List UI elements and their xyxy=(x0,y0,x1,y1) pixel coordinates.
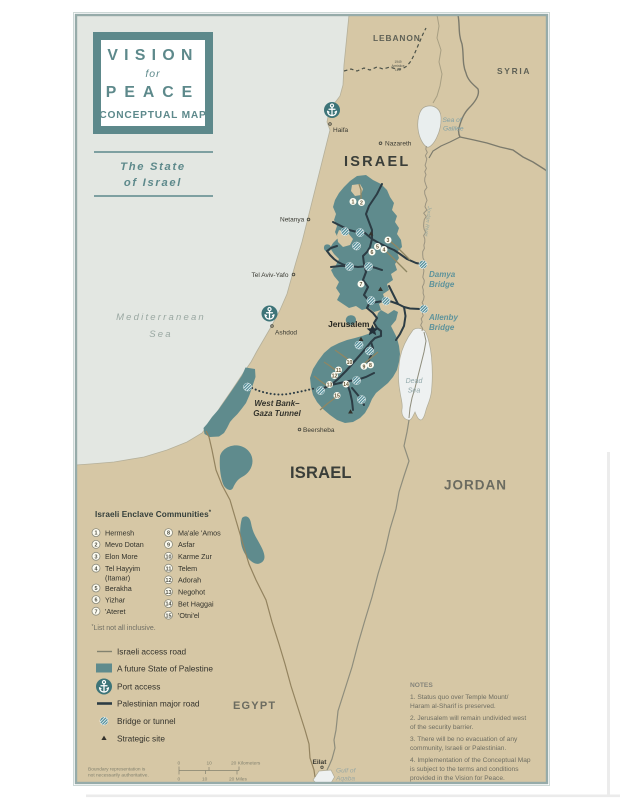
svg-text:4. Implementation of the Conce: 4. Implementation of the Conceptual Map xyxy=(410,757,531,764)
svg-text:0: 0 xyxy=(178,777,181,783)
svg-text:Yizhar: Yizhar xyxy=(105,595,126,604)
svg-text:6: 6 xyxy=(371,250,374,256)
svg-text:Aqaba: Aqaba xyxy=(335,776,355,783)
svg-text:Mevo Dotan: Mevo Dotan xyxy=(105,540,144,549)
svg-text:10: 10 xyxy=(207,761,213,767)
svg-text:9: 9 xyxy=(363,364,366,370)
svg-text:4: 4 xyxy=(383,248,386,254)
svg-text:13: 13 xyxy=(166,590,172,596)
svg-text:Mediterranean: Mediterranean xyxy=(116,312,206,323)
svg-text:2: 2 xyxy=(360,201,363,207)
svg-text:Eilat: Eilat xyxy=(313,759,328,766)
svg-text:A future State of Palestine: A future State of Palestine xyxy=(117,664,213,674)
svg-text:Port access: Port access xyxy=(117,682,160,692)
svg-text:'Otni'el: 'Otni'el xyxy=(178,611,200,620)
svg-text:7: 7 xyxy=(95,609,98,615)
svg-text:3: 3 xyxy=(387,238,390,244)
svg-text:Sea of: Sea of xyxy=(443,117,463,124)
svg-text:Bridge: Bridge xyxy=(429,323,455,332)
svg-text:Hermesh: Hermesh xyxy=(105,528,134,537)
svg-text:Palestinian major road: Palestinian major road xyxy=(117,699,200,709)
svg-text:of Israel: of Israel xyxy=(124,177,182,189)
svg-text:Berakha: Berakha xyxy=(105,584,132,593)
svg-text:Bridge or tunnel: Bridge or tunnel xyxy=(117,716,176,726)
svg-text:Beersheba: Beersheba xyxy=(303,427,335,434)
svg-text:Israeli Enclave Communities*: Israeli Enclave Communities* xyxy=(95,510,212,519)
svg-text:of the security barrier.: of the security barrier. xyxy=(410,724,474,731)
svg-text:Boundary representation is: Boundary representation is xyxy=(88,767,146,773)
svg-text:20 Kilometers: 20 Kilometers xyxy=(231,761,261,767)
svg-text:Galilee: Galilee xyxy=(443,126,464,133)
svg-text:15: 15 xyxy=(334,394,340,400)
svg-text:Ashdod: Ashdod xyxy=(275,330,297,337)
svg-text:1. Status quo over Temple Moun: 1. Status quo over Temple Mount/ xyxy=(410,694,509,701)
svg-text:Gaza Tunnel: Gaza Tunnel xyxy=(253,409,301,418)
svg-text:Sea: Sea xyxy=(149,329,173,340)
svg-text:Bridge: Bridge xyxy=(429,280,455,289)
svg-text:1: 1 xyxy=(352,200,355,206)
svg-text:Negohot: Negohot xyxy=(178,588,205,597)
svg-text:Haifa: Haifa xyxy=(333,127,349,134)
svg-text:14: 14 xyxy=(166,602,172,608)
svg-text:12: 12 xyxy=(166,578,172,584)
svg-text:Tel Aviv-Yafo: Tel Aviv-Yafo xyxy=(252,272,289,279)
svg-text:4: 4 xyxy=(95,566,98,572)
svg-text:Gulf of: Gulf of xyxy=(336,768,357,775)
svg-text:Netanya: Netanya xyxy=(280,217,305,224)
svg-text:Nazareth: Nazareth xyxy=(385,141,412,148)
svg-text:1: 1 xyxy=(95,531,98,537)
svg-text:Allenby: Allenby xyxy=(428,313,458,322)
svg-text:5: 5 xyxy=(95,586,98,592)
svg-text:West Bank–: West Bank– xyxy=(254,399,300,408)
svg-text:Bet Haggai: Bet Haggai xyxy=(178,599,214,608)
svg-text:SYRIA: SYRIA xyxy=(497,66,531,76)
svg-text:10: 10 xyxy=(202,777,208,783)
svg-text:(Itamar): (Itamar) xyxy=(105,574,130,583)
svg-text:Tel Hayyim: Tel Hayyim xyxy=(105,564,140,573)
svg-text:20 Miles: 20 Miles xyxy=(229,777,247,783)
svg-text:13: 13 xyxy=(327,383,333,389)
svg-text:*List not all inclusive.: *List not all inclusive. xyxy=(92,624,156,632)
svg-text:CONCEPTUAL MAP: CONCEPTUAL MAP xyxy=(99,110,206,121)
svg-text:10: 10 xyxy=(166,554,172,560)
svg-text:Strategic site: Strategic site xyxy=(117,734,165,744)
svg-text:community, Israeli or Palestin: community, Israeli or Palestinian. xyxy=(410,745,506,752)
svg-text:VISION: VISION xyxy=(107,47,198,64)
svg-text:6: 6 xyxy=(95,598,98,604)
svg-text:8: 8 xyxy=(167,531,170,537)
svg-text:is subject to the terms and co: is subject to the terms and conditions xyxy=(410,766,519,773)
svg-text:ISRAEL: ISRAEL xyxy=(290,464,352,482)
svg-text:Haram al-Sharif is preserved.: Haram al-Sharif is preserved. xyxy=(410,703,496,710)
svg-text:Israeli access road: Israeli access road xyxy=(117,647,187,657)
svg-text:5: 5 xyxy=(376,245,379,251)
svg-text:JORDAN: JORDAN xyxy=(444,478,507,493)
svg-text:NOTES: NOTES xyxy=(410,682,433,689)
svg-text:The State: The State xyxy=(120,161,186,173)
svg-text:not necessarily authoritative.: not necessarily authoritative. xyxy=(88,773,149,779)
svg-text:Sea: Sea xyxy=(408,388,421,395)
svg-text:Karme Zur: Karme Zur xyxy=(178,552,213,561)
svg-text:Line: Line xyxy=(395,68,401,72)
svg-text:14: 14 xyxy=(343,382,349,388)
svg-text:Elon More: Elon More xyxy=(105,552,138,561)
svg-text:Ma'ale 'Amos: Ma'ale 'Amos xyxy=(178,528,221,537)
svg-text:PEACE: PEACE xyxy=(106,84,200,101)
svg-text:Damya: Damya xyxy=(429,270,456,279)
svg-text:Dead: Dead xyxy=(406,378,424,385)
svg-text:2: 2 xyxy=(95,543,98,549)
svg-text:ISRAEL: ISRAEL xyxy=(344,154,410,170)
svg-text:7: 7 xyxy=(360,282,363,288)
svg-text:Telem: Telem xyxy=(178,564,197,573)
svg-text:8: 8 xyxy=(369,363,372,369)
svg-text:11: 11 xyxy=(166,566,172,572)
svg-text:3: 3 xyxy=(95,554,98,560)
svg-text:for: for xyxy=(145,68,160,80)
svg-text:Jerusalem: Jerusalem xyxy=(328,319,369,329)
svg-text:EGYPT: EGYPT xyxy=(233,700,276,712)
svg-text:Asfar: Asfar xyxy=(178,540,195,549)
svg-text:9: 9 xyxy=(167,543,170,549)
svg-text:12: 12 xyxy=(332,374,338,380)
svg-text:'Ateret: 'Ateret xyxy=(105,607,126,616)
svg-text:10: 10 xyxy=(347,360,353,366)
svg-text:2. Jerusalem will remain undiv: 2. Jerusalem will remain undivided west xyxy=(410,715,526,722)
svg-text:15: 15 xyxy=(166,613,172,619)
svg-text:3. There will be no evacuation: 3. There will be no evacuation of any xyxy=(410,736,518,743)
svg-text:LEBANON: LEBANON xyxy=(373,33,421,43)
svg-text:0: 0 xyxy=(178,761,181,767)
svg-text:provided in the Vision for Pea: provided in the Vision for Peace. xyxy=(410,775,505,782)
svg-text:Adorah: Adorah xyxy=(178,576,201,585)
